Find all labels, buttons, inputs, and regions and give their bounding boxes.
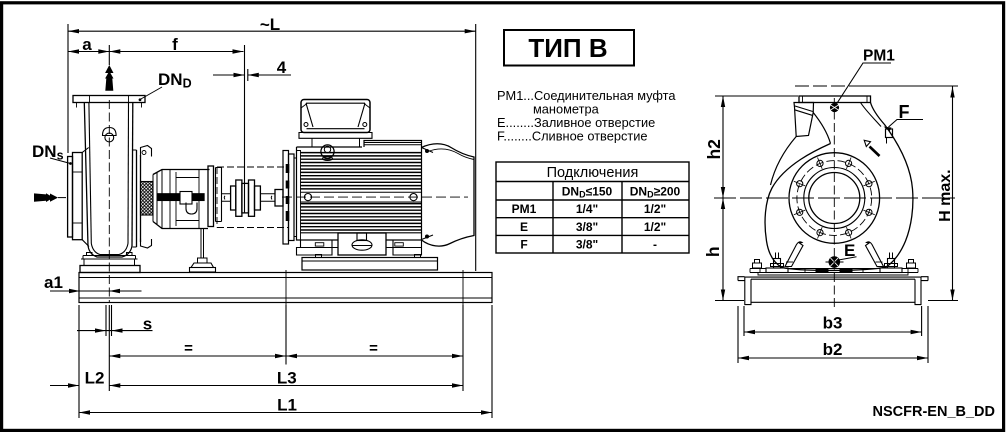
- svg-text:H max.: H max.: [937, 169, 954, 221]
- svg-text:E: E: [520, 220, 528, 234]
- svg-text:PM1: PM1: [863, 48, 895, 65]
- svg-text:E: E: [844, 241, 855, 260]
- svg-text:1/2": 1/2": [644, 202, 666, 216]
- svg-text:3/8": 3/8": [576, 238, 598, 252]
- svg-text:3/8": 3/8": [576, 220, 598, 234]
- svg-text:ТИП B: ТИП B: [528, 33, 607, 63]
- svg-text:=: =: [184, 340, 193, 357]
- svg-text:Подключения: Подключения: [547, 165, 639, 181]
- svg-text:4: 4: [277, 58, 287, 77]
- svg-text:PM1: PM1: [512, 202, 537, 216]
- svg-text:1/4": 1/4": [576, 202, 598, 216]
- svg-text:F........Сливное отверстие: F........Сливное отверстие: [497, 129, 647, 144]
- svg-text:DND≤150: DND≤150: [562, 185, 613, 200]
- svg-text:~L: ~L: [260, 15, 280, 34]
- svg-text:1/2": 1/2": [644, 220, 666, 234]
- svg-text:L2: L2: [85, 369, 105, 388]
- svg-text:=: =: [369, 340, 378, 357]
- svg-text:f: f: [172, 35, 178, 54]
- svg-text:L3: L3: [277, 369, 297, 388]
- svg-text:b3: b3: [823, 314, 843, 333]
- svg-text:F: F: [520, 238, 527, 252]
- svg-text:h2: h2: [704, 139, 724, 160]
- svg-text:a1: a1: [44, 273, 63, 292]
- svg-text:s: s: [143, 315, 152, 334]
- svg-text:DND≥200: DND≥200: [630, 185, 681, 200]
- svg-text:h: h: [703, 246, 723, 257]
- svg-text:NSCFR-EN_B_DD: NSCFR-EN_B_DD: [873, 404, 995, 420]
- svg-text:b2: b2: [823, 340, 843, 359]
- svg-text:L1: L1: [277, 396, 297, 415]
- svg-text:-: -: [653, 238, 657, 252]
- svg-text:a: a: [82, 35, 92, 54]
